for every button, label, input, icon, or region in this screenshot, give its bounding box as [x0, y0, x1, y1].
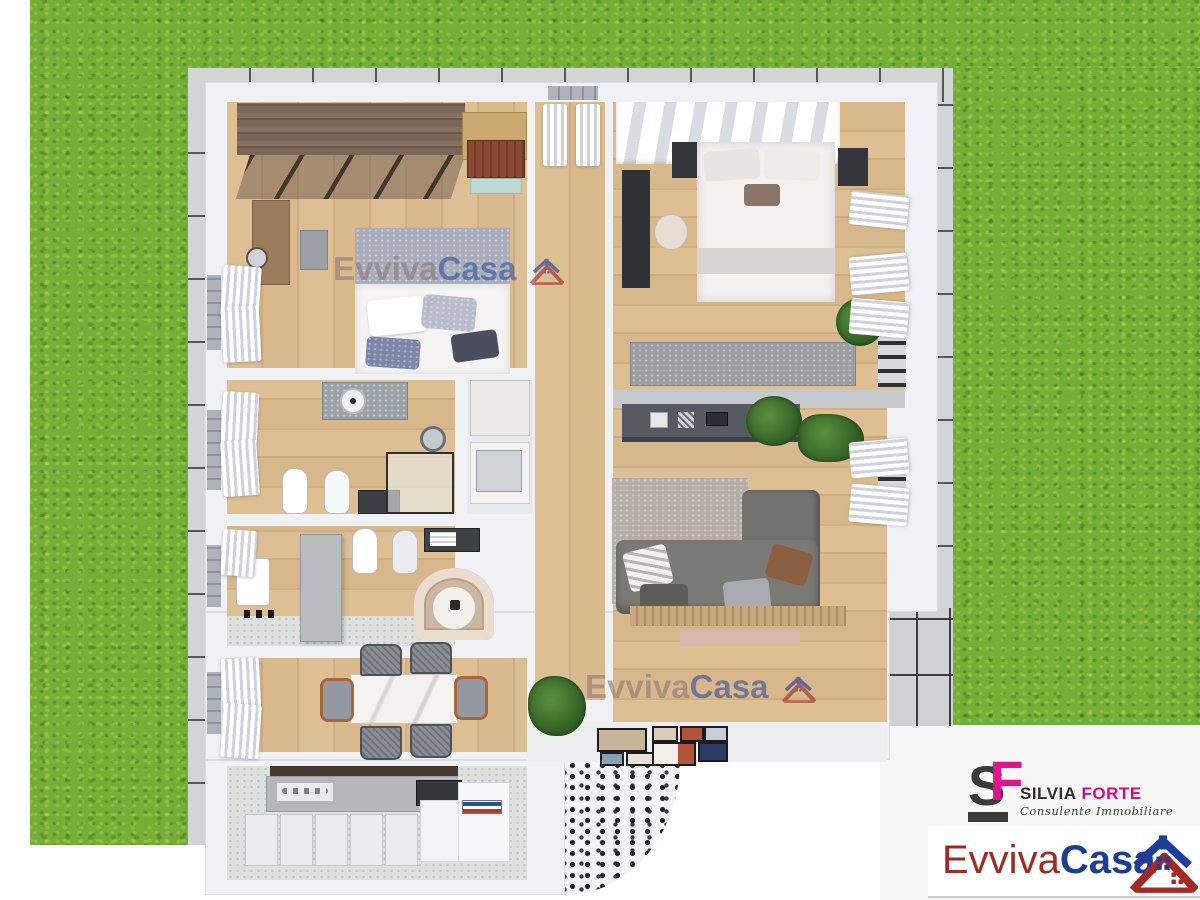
lawn-left	[30, 0, 193, 845]
picture-frame-8	[704, 726, 728, 742]
curtain-bathroom-main-1	[221, 391, 260, 445]
wardrobe	[237, 103, 465, 155]
palm-plant-entry	[528, 676, 586, 736]
agency-monogram: SF	[968, 758, 1024, 814]
picture-frame-2	[600, 752, 624, 766]
agency-name: SILVIAFORTE	[1020, 784, 1142, 804]
bed-second-accent-pillow	[744, 184, 780, 206]
picture-frame-6	[680, 726, 704, 742]
sideboard-item-2	[678, 412, 694, 428]
kitchen-cabinet-3	[315, 814, 348, 866]
window-left-3	[207, 545, 221, 607]
bathtub-faucet	[450, 600, 460, 610]
sideboard-item-1	[650, 412, 668, 428]
curtain-bedroom-second-1	[848, 190, 909, 230]
picture-frame-4	[652, 726, 678, 742]
picture-frame-7	[698, 742, 728, 762]
bed-second-blanket-fold	[697, 248, 835, 274]
window-left-2	[207, 410, 221, 490]
bed-main-pillow-4	[365, 336, 421, 370]
curtain-hallway-1	[543, 104, 567, 166]
window-top-hall	[548, 86, 598, 100]
kitchen-tall-cabinet	[458, 782, 510, 862]
brand-logo-card: EvvivaCasa	[928, 826, 1200, 896]
toilet-main	[282, 468, 308, 514]
agency-name-first: SILVIA	[1020, 784, 1077, 803]
curtain-living-2	[848, 484, 909, 527]
floor-plan-render: EvvivaCasa EvvivaCasa SF SILVIAFORTE Con…	[0, 0, 1200, 900]
mosaic-curved-wall	[565, 760, 680, 895]
washbasin-drain	[350, 398, 356, 404]
lawn-top	[193, 0, 1200, 68]
closet-cabinet-1	[470, 380, 530, 436]
dining-chair-bottom-2	[410, 724, 452, 758]
glass-shower	[386, 452, 454, 514]
round-mirror	[420, 426, 446, 452]
toilet-second	[352, 528, 378, 574]
twin-houses-icon	[1106, 828, 1198, 894]
dining-chair-right	[454, 676, 488, 720]
hallway-floor	[535, 102, 605, 700]
kitchen-cabinet-5	[385, 814, 418, 866]
nightstand-right	[838, 148, 868, 186]
curtain-bedroom-second-2	[848, 253, 909, 296]
nightstand-left	[672, 142, 698, 178]
monogram-f: F	[989, 749, 1023, 812]
monogram-underline	[968, 812, 1008, 822]
curtain-bedroom-second-3	[849, 298, 910, 339]
curtain-bedroom-main-2	[221, 305, 262, 363]
agency-name-last: FORTE	[1082, 784, 1142, 803]
wardrobe-glass-doors	[236, 155, 465, 199]
closet-picture	[476, 450, 522, 492]
agency-tagline: Consulente Immobiliare	[1020, 804, 1173, 818]
bed-main-blanket	[355, 228, 510, 284]
bidet-second	[392, 530, 418, 574]
bed-main-pillow-1	[366, 295, 427, 337]
picture-frame-5	[652, 742, 696, 766]
dining-chair-top-1	[360, 644, 402, 676]
curtain-dining-2	[220, 703, 262, 760]
bidet-main	[324, 470, 350, 514]
curtain-hallway-2	[576, 104, 600, 166]
curtain-bathroom-main-2	[220, 439, 260, 497]
storage-bench	[630, 342, 856, 386]
lawn-right	[953, 68, 1200, 725]
plant-living-1	[746, 396, 802, 446]
dining-chair-top-2	[410, 642, 452, 674]
entry-mat	[680, 630, 800, 646]
dining-table	[350, 674, 458, 724]
book-stack	[462, 800, 502, 814]
vintage-trunk	[467, 140, 525, 178]
brand-text-evviva: Evviva	[942, 838, 1060, 882]
desk	[622, 170, 650, 288]
bed-main-pillow-2	[421, 294, 478, 333]
dining-chair-left	[320, 678, 354, 722]
bath-partition	[300, 534, 342, 642]
stool	[300, 230, 328, 270]
sink-fittings	[244, 610, 278, 618]
window-left-1	[207, 275, 221, 350]
kitchen-knobs	[282, 788, 328, 794]
storage-box	[470, 178, 522, 194]
kitchen-cabinet-2	[280, 814, 313, 866]
bed-second-pillow-1	[703, 148, 761, 182]
curtain-living-1	[849, 438, 910, 479]
dining-chair-bottom-1	[360, 726, 402, 760]
desk-chair	[654, 214, 688, 250]
towel-stack	[430, 532, 456, 546]
kitchen-countertop-dark	[270, 766, 458, 776]
window-left-4	[207, 672, 221, 734]
bed-second-pillow-2	[763, 149, 820, 182]
wood-deck	[630, 606, 846, 626]
kitchen-cabinet-1	[245, 814, 278, 866]
patio-tiles	[885, 608, 953, 730]
picture-frame-1	[597, 728, 647, 752]
agency-logo: SF SILVIAFORTE Consulente Immobiliare	[968, 758, 1188, 824]
kitchen-cabinet-4	[350, 814, 383, 866]
sideboard-item-3	[706, 412, 728, 426]
curtain-bathroom-second	[220, 529, 257, 577]
